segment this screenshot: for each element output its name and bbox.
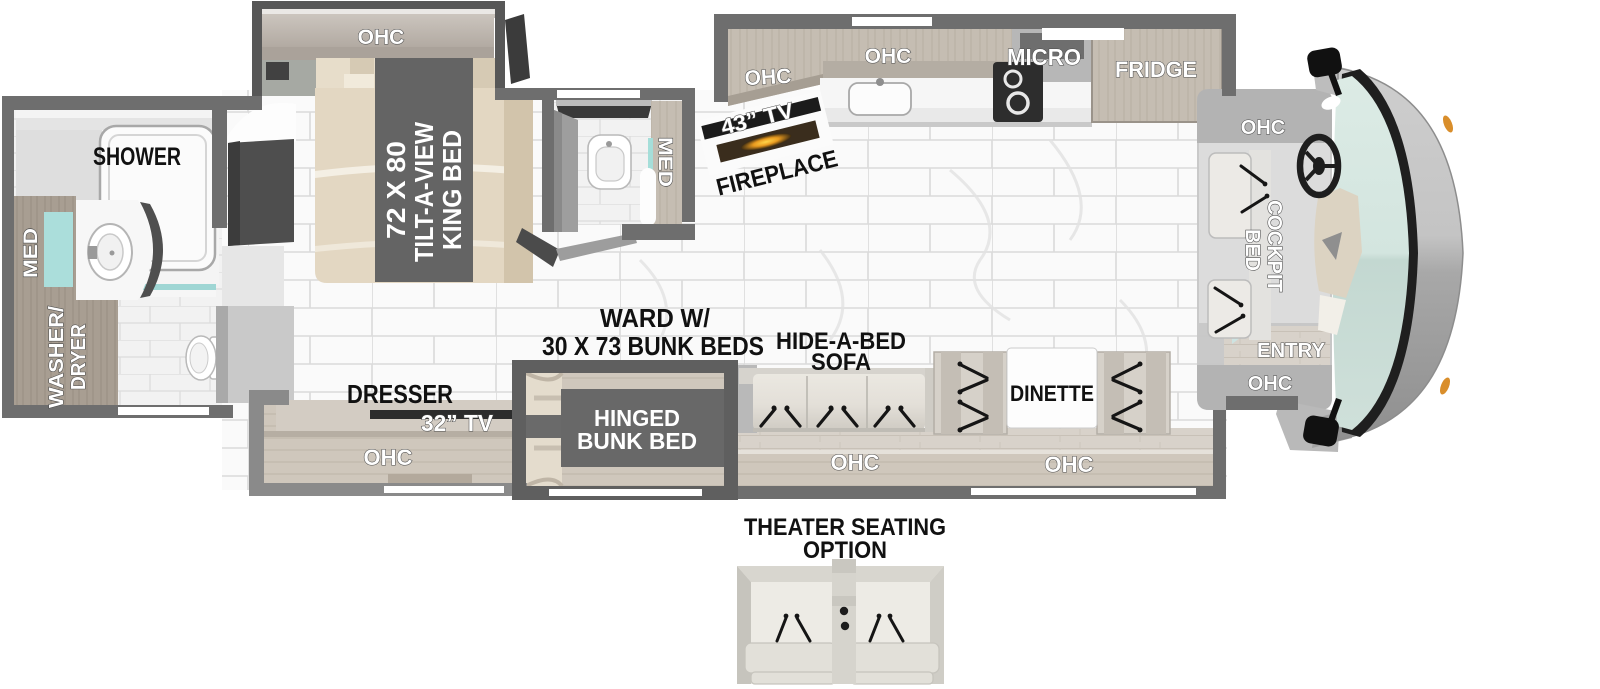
- svg-text:OHC: OHC: [1241, 117, 1285, 139]
- svg-text:WASHER/: WASHER/: [46, 306, 68, 408]
- svg-text:32” TV: 32” TV: [421, 410, 494, 436]
- svg-text:MICRO: MICRO: [1007, 44, 1081, 70]
- svg-text:OHC: OHC: [865, 45, 912, 68]
- svg-text:DRYER: DRYER: [68, 323, 90, 390]
- svg-text:ENTRY: ENTRY: [1257, 340, 1326, 362]
- svg-text:DRESSER: DRESSER: [347, 379, 453, 409]
- svg-text:COCKPIT: COCKPIT: [1263, 200, 1285, 292]
- svg-text:OHC: OHC: [358, 26, 405, 49]
- svg-text:OHC: OHC: [744, 65, 792, 90]
- svg-text:SHOWER: SHOWER: [93, 143, 181, 171]
- svg-text:BED: BED: [1241, 229, 1263, 271]
- svg-text:OHC: OHC: [831, 450, 880, 475]
- svg-text:FRIDGE: FRIDGE: [1115, 57, 1197, 82]
- svg-text:MED: MED: [21, 228, 42, 278]
- svg-text:MED: MED: [654, 137, 675, 187]
- svg-text:OPTION: OPTION: [803, 537, 887, 564]
- svg-text:BUNK BED: BUNK BED: [577, 428, 697, 454]
- svg-text:SOFA: SOFA: [811, 349, 871, 376]
- svg-text:OHC: OHC: [1045, 452, 1094, 477]
- svg-text:KING BED: KING BED: [437, 130, 467, 250]
- svg-text:TILT-A-VIEW: TILT-A-VIEW: [409, 122, 439, 262]
- svg-text:30 X 73 BUNK BEDS: 30 X 73 BUNK BEDS: [542, 331, 764, 361]
- svg-text:DINETTE: DINETTE: [1010, 381, 1094, 406]
- svg-text:OHC: OHC: [1248, 373, 1292, 395]
- svg-text:72 X 80: 72 X 80: [381, 141, 411, 239]
- svg-text:WARD W/: WARD W/: [600, 303, 710, 333]
- svg-text:OHC: OHC: [364, 445, 413, 470]
